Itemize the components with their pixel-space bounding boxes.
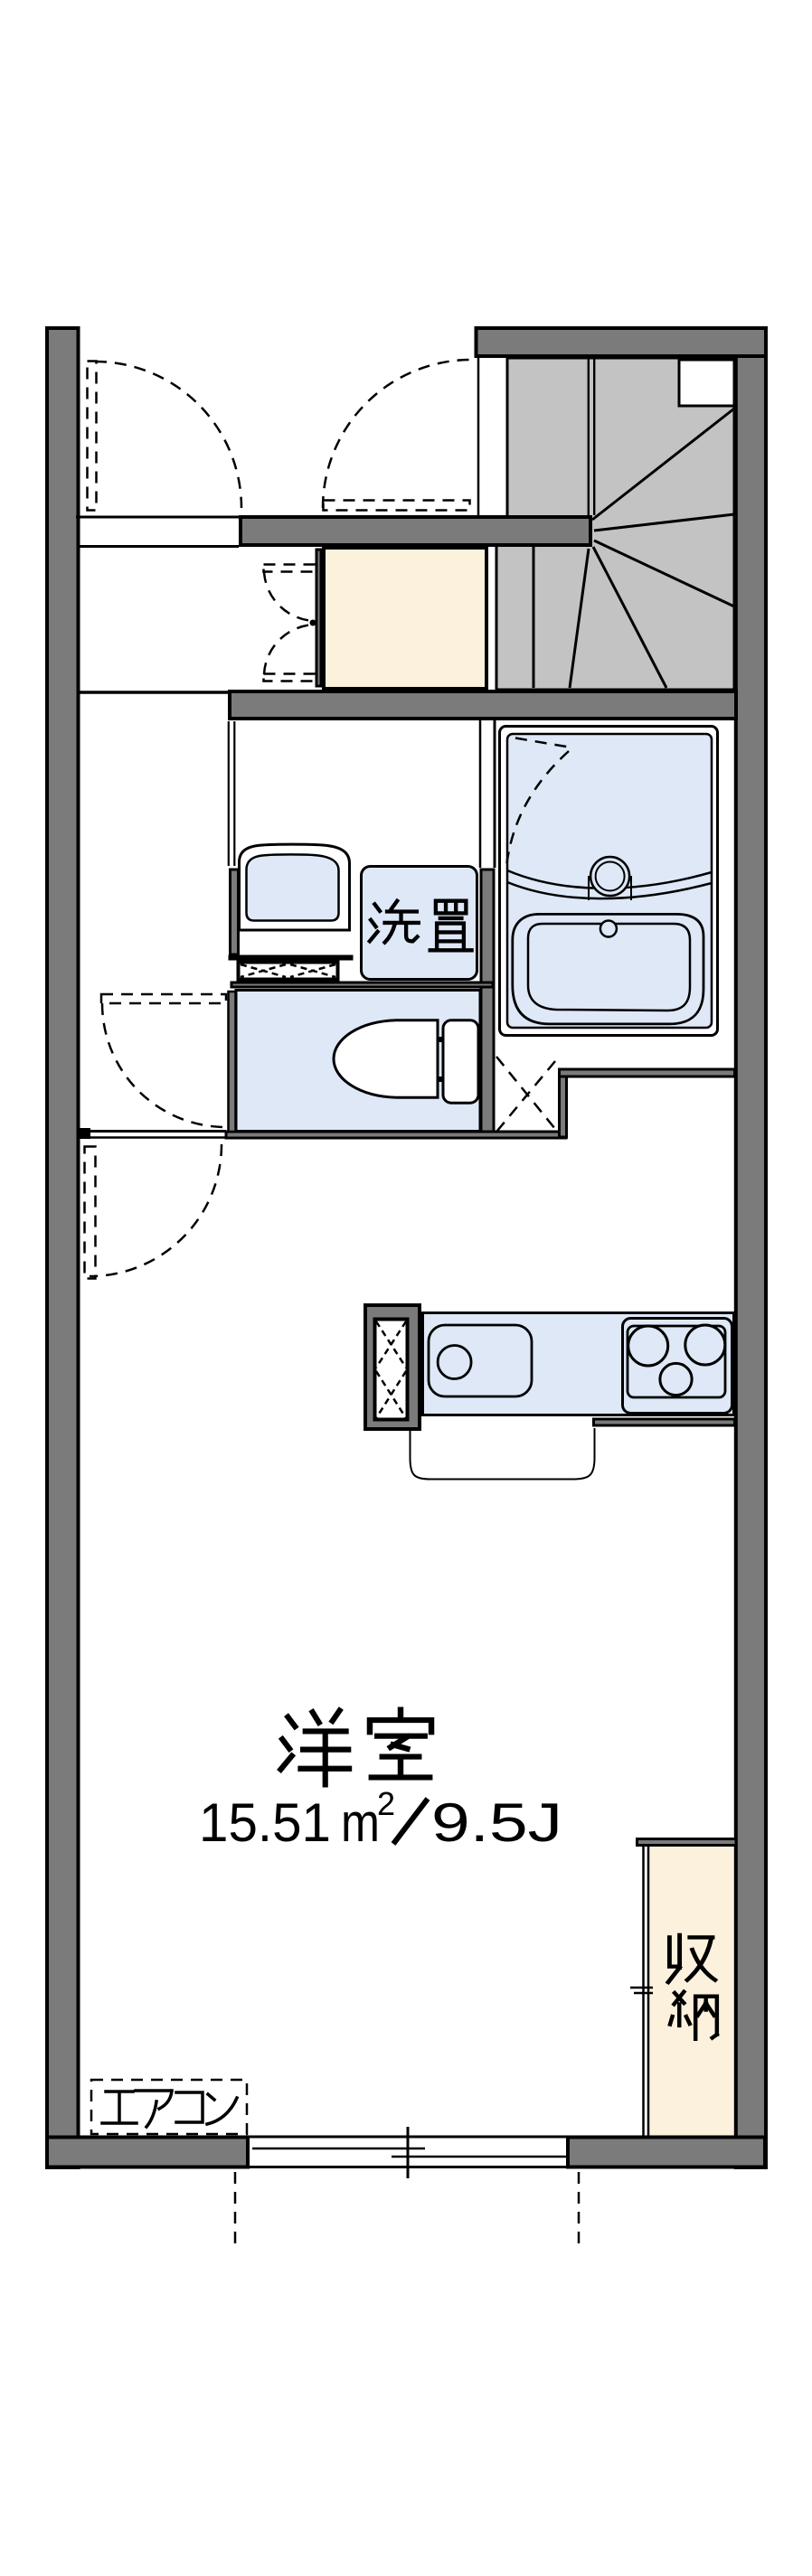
svg-text:m: m bbox=[341, 1792, 380, 1853]
svg-text:2: 2 bbox=[377, 1785, 395, 1822]
svg-text:9.5J: 9.5J bbox=[431, 1792, 562, 1853]
svg-text:15.51: 15.51 bbox=[199, 1792, 331, 1853]
